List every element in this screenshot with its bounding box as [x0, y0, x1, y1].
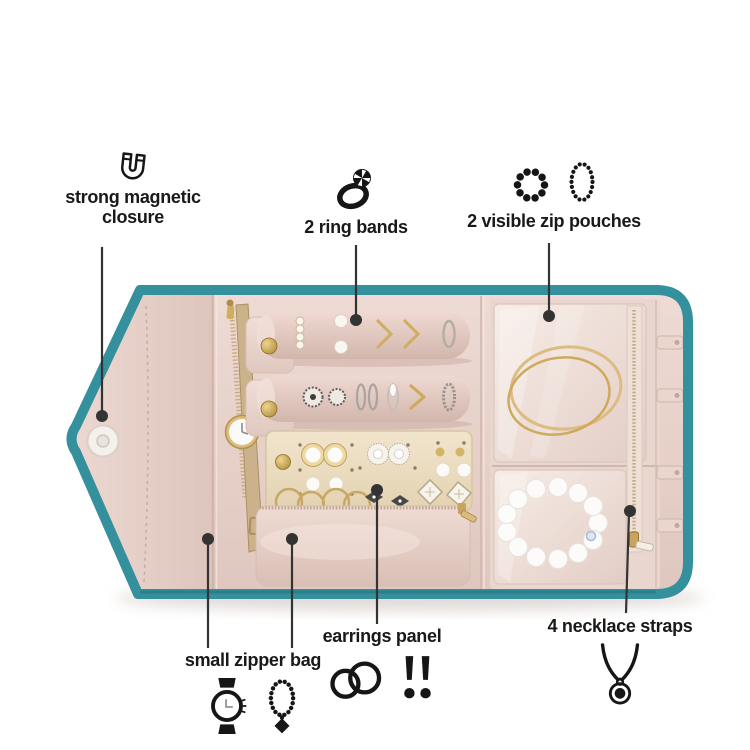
ring-icon [333, 166, 379, 212]
callout-dot [96, 410, 108, 422]
callout-dot [624, 505, 636, 517]
annotation-necklace-straps: 4 necklace straps [532, 616, 708, 705]
annotation-label: 2 ring bands [286, 217, 426, 237]
callout-dot [543, 310, 555, 322]
magnet-icon [114, 148, 152, 182]
earring-panel [266, 431, 472, 518]
small-zipper-bag [256, 503, 477, 586]
watch-icon [205, 677, 249, 735]
clear-zip-pouch-top [494, 304, 646, 462]
stud-earrings-icon [398, 653, 436, 703]
callout-dot [371, 484, 383, 496]
annotation-label: 4 necklace straps [532, 616, 708, 636]
right-section [481, 296, 683, 590]
snap-button [88, 426, 119, 457]
pendant-necklace-icon [263, 677, 301, 735]
necklace-pendant-icon [594, 643, 646, 705]
annotation-earrings-panel: earrings panel [307, 626, 457, 703]
ring-roll-2 [246, 375, 472, 436]
hoop-earrings-icon [328, 654, 384, 702]
annotation-label: 2 visible zip pouches [459, 211, 649, 231]
annotation-zip-pouches: 2 visible zip pouches [459, 158, 649, 231]
annotation-label: earrings panel [307, 626, 457, 646]
beaded-oval-icon [566, 158, 598, 206]
beaded-bracelet-icon [510, 164, 552, 206]
callout-dot [286, 533, 298, 545]
product-infographic: strong magnetic closure [0, 0, 750, 750]
clear-zip-pouch-bottom [494, 470, 626, 584]
callout-dot [350, 314, 362, 326]
callout-dot [202, 533, 214, 545]
magnetic-flap [73, 291, 217, 592]
annotation-magnetic-closure: strong magnetic closure [43, 148, 223, 228]
annotation-ring-bands: 2 ring bands [286, 166, 426, 237]
annotation-label: strong magnetic closure [43, 187, 223, 228]
